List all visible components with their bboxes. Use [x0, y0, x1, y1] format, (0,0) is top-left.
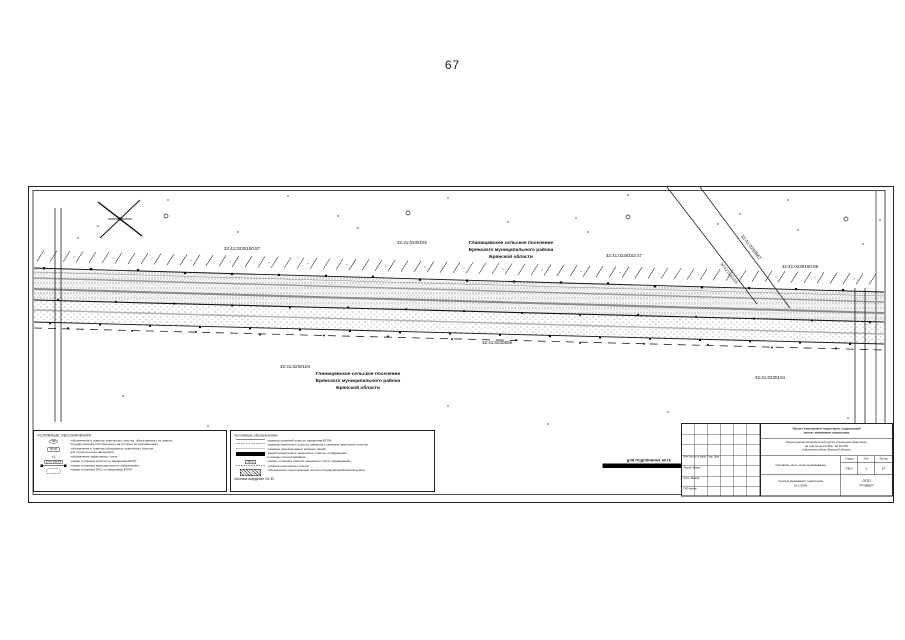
temp-parcel-symbol: 38(1) — [234, 460, 267, 465]
company-name: ООО «Глэвис» — [841, 475, 892, 496]
cadastral-label: 32:41:0230192 — [397, 240, 428, 245]
legend-item: -кадастровый номер земельного участка, п… — [234, 452, 431, 459]
settlement-boundary-symbol — [234, 465, 267, 466]
svg-text:Брянского муниципального район: Брянского муниципального района — [316, 377, 401, 384]
page-number: 67 — [0, 58, 905, 72]
legend-title: УСЛОВНЫЕ ОБОЗНАЧЕНИЯ — [37, 433, 223, 438]
title-block: Изм. Кол.уч № докум. Подп. Дата Разраб. … — [681, 423, 893, 497]
object-name: Реконструкция автомобильной дороги «Глин… — [761, 439, 892, 456]
coordinate-system-note: Система координат СК-32 — [234, 478, 431, 482]
legend-item: 38(1) -номер и граница участка, имеющего… — [234, 460, 431, 465]
scanned-page: { "page": { "number": "67" }, "map": { "… — [0, 0, 905, 640]
legend-item: -номер и граница ОКС по сведениям ЕГРН — [37, 468, 223, 474]
solid-line-symbol — [234, 439, 267, 440]
legend-item: -номер и граница муниципального образова… — [37, 464, 223, 468]
sig-row: ГИП Иванов — [684, 488, 697, 491]
svg-text:Брянского муниципального район: Брянского муниципального района — [469, 246, 554, 253]
boundary-squares-symbol — [37, 464, 70, 467]
red-line-symbol — [234, 447, 267, 448]
document-title: Проект планировки территории, содержащий… — [761, 424, 892, 439]
settlement-label-bottom: Глинищевское сельское поселение Брянског… — [316, 371, 401, 391]
right-of-way-hatch-symbol — [234, 469, 267, 477]
svg-text:Глинищевское сельское поселени: Глинищевское сельское поселение — [469, 240, 554, 246]
legend-item: -граница земельного участка, имеющего см… — [234, 443, 431, 447]
cadastral-label: 32:41:0230150:89 — [782, 264, 819, 269]
cadastral-label-rotated: 32:41:0230153 — [719, 262, 738, 284]
point-symbol: +1 — [37, 455, 70, 459]
sig-row: Разраб. Иванов — [684, 467, 701, 470]
sheet-name: Чертеж межевания территории М 1:2000 — [761, 475, 841, 496]
north-star-icon — [98, 200, 142, 238]
legend-item: +1 -обозначение характерных точек — [37, 455, 223, 459]
cadastral-label: 32:41:0230150:87 — [224, 246, 261, 251]
svg-text:Глинищевское сельское поселени: Глинищевское сельское поселение — [316, 371, 401, 377]
parcel-box-symbol: :87(2) — [37, 447, 70, 452]
cadastral-label-rotated: 32:41:0230567 — [740, 234, 763, 261]
settlement-label-top: Глинищевское сельское поселение Брянског… — [469, 240, 554, 260]
legend-item: :87(2) -обозначение и границы образуемог… — [37, 447, 223, 454]
legend-box-right: Условные обозначения -граница охранной з… — [230, 430, 435, 492]
road-corridor — [34, 268, 884, 350]
section-name: Основная часть проекта межевания — [761, 456, 841, 475]
cadastral-label: 32:41:0230104 — [280, 364, 311, 369]
signature-table: Изм. Кол.уч № докум. Подп. Дата Разраб. … — [682, 424, 761, 496]
highlighted-number-symbol — [234, 452, 267, 457]
oks-dashed-symbol — [37, 468, 70, 474]
legend-item: :86 -обозначение и границы земельного уч… — [37, 439, 223, 446]
stage-table: Стадия Лист Листов ПМ-1 3 67 — [841, 456, 892, 475]
sig-row: Пров. Иванова — [684, 477, 700, 480]
legend-box-left: УСЛОВНЫЕ ОБОЗНАЧЕНИЯ :86 -обозначение и … — [33, 430, 227, 492]
cadastral-label: 32:41:0230162:47 — [606, 253, 643, 258]
legend-item: -граница населенного пункта — [234, 465, 431, 469]
cadastral-label: 32:41:0230506 — [482, 340, 513, 345]
legend-item: -границы проектируемых красных линий — [234, 447, 431, 451]
parcel-oval-symbol: :86 — [37, 439, 70, 444]
legend-item: -обозначение существующей полосы отвода … — [234, 469, 431, 477]
sig-header: Изм. Кол.уч № докум. Подп. Дата — [684, 456, 720, 459]
legend-item: -граница охранной зоны по сведениям ЕГРН — [234, 439, 431, 443]
dashed-line-symbol — [234, 443, 267, 444]
cadastral-label: 32:41:0230104 — [755, 375, 786, 380]
legend-item: 32:41:0230104 -номер и граница участка п… — [37, 459, 223, 463]
svg-text:Брянской области: Брянской области — [336, 384, 380, 391]
cadastral-number-symbol: 32:41:0230104 — [37, 459, 70, 463]
legend-title: Условные обозначения — [234, 433, 431, 438]
svg-text:Брянской области: Брянской области — [489, 253, 533, 260]
